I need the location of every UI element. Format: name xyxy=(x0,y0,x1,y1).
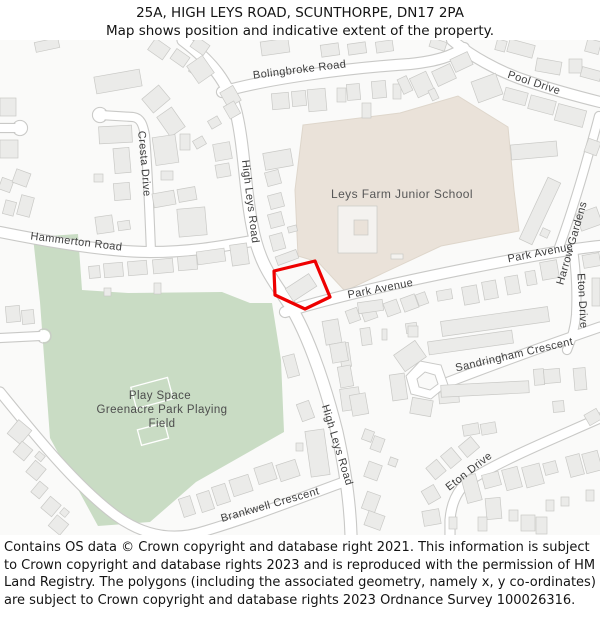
building xyxy=(329,342,348,363)
building xyxy=(525,270,537,286)
building xyxy=(436,289,453,301)
building xyxy=(449,517,457,529)
building xyxy=(371,80,386,98)
building xyxy=(307,88,327,111)
map-description-subtitle: Map shows position and indicative extent… xyxy=(0,22,600,40)
road xyxy=(0,336,40,338)
building xyxy=(177,255,197,271)
building xyxy=(337,88,346,102)
map-svg: Bolingbroke RoadPool DriveCresta DriveHi… xyxy=(0,40,600,535)
building xyxy=(509,510,518,521)
playing-field-label: Field xyxy=(149,418,176,430)
building xyxy=(152,258,173,274)
building xyxy=(462,423,480,437)
building xyxy=(161,171,173,180)
building xyxy=(546,500,554,511)
building xyxy=(177,207,207,237)
building xyxy=(271,92,289,109)
building xyxy=(480,422,497,435)
building xyxy=(104,288,111,296)
building xyxy=(482,280,499,300)
building xyxy=(95,215,114,234)
building xyxy=(553,401,565,413)
building xyxy=(592,278,600,306)
building xyxy=(354,220,368,235)
property-address-title: 25A, HIGH LEYS ROAD, SCUNTHORPE, DN17 2P… xyxy=(0,4,600,22)
building xyxy=(408,326,418,337)
building xyxy=(320,43,339,57)
building xyxy=(346,83,360,100)
building xyxy=(0,140,18,158)
building xyxy=(117,220,130,231)
school-label: Leys Farm Junior School xyxy=(331,187,473,201)
building xyxy=(296,443,303,451)
property-map: Bolingbroke RoadPool DriveCresta DriveHi… xyxy=(0,40,600,535)
building xyxy=(215,163,231,178)
building xyxy=(5,305,20,322)
building xyxy=(94,174,103,182)
building xyxy=(88,266,100,279)
building xyxy=(505,275,521,295)
building xyxy=(582,253,600,269)
building xyxy=(543,368,560,383)
building xyxy=(536,517,547,534)
building xyxy=(375,40,393,53)
building xyxy=(478,517,487,531)
building xyxy=(422,509,441,527)
building xyxy=(230,243,250,266)
building xyxy=(485,497,502,519)
building xyxy=(21,310,34,325)
building xyxy=(0,98,16,116)
playing-field-label: Play Space xyxy=(129,390,191,402)
building xyxy=(113,182,130,200)
building xyxy=(213,142,233,162)
building xyxy=(561,497,569,506)
building xyxy=(113,147,131,173)
building xyxy=(360,327,372,345)
building xyxy=(391,254,403,259)
building xyxy=(152,135,179,166)
building xyxy=(347,42,366,55)
building xyxy=(291,90,306,106)
building xyxy=(362,103,371,118)
building xyxy=(103,262,123,278)
building xyxy=(99,125,133,144)
building xyxy=(154,283,161,294)
building xyxy=(573,368,587,391)
building xyxy=(586,490,594,501)
building xyxy=(533,369,544,386)
map-header: 25A, HIGH LEYS ROAD, SCUNTHORPE, DN17 2P… xyxy=(0,0,600,40)
building xyxy=(180,134,190,150)
playing-field-label: Greenacre Park Playing xyxy=(97,404,228,416)
building xyxy=(382,329,387,340)
building xyxy=(389,373,407,401)
building xyxy=(569,59,582,73)
building xyxy=(521,515,535,531)
building xyxy=(349,393,368,416)
building xyxy=(127,260,147,276)
copyright-footer: Contains OS data © Crown copyright and d… xyxy=(0,535,600,625)
building xyxy=(177,187,197,203)
building xyxy=(462,285,480,305)
building xyxy=(410,397,433,416)
